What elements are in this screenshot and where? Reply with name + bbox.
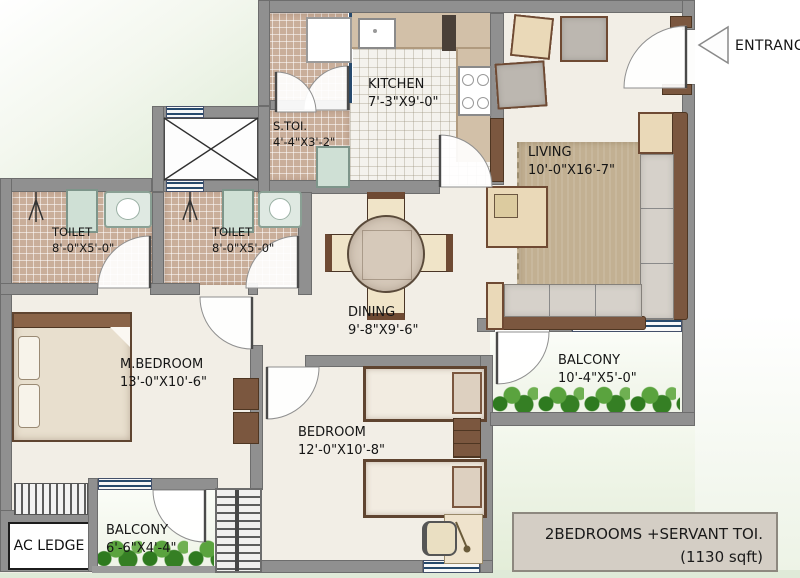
dining-name: DINING [348,304,418,322]
stoi-dims: 4'-4"X3'-2" [273,134,335,150]
exterior-right [695,0,800,572]
bedroom-label: BEDROOM 12'-0"X10'-8" [298,424,385,460]
sofa-seats-horizontal [504,284,642,317]
wall-left [0,178,12,512]
entrance-jamb-bottom [662,84,692,95]
mbedroom-dims: 13'-0"X10'-6" [120,374,207,392]
sofa-corner-table [638,112,676,154]
bed2-pillow [452,466,482,508]
entrance-label: ENTRANCE [735,37,800,57]
balcony-bedroom-window [98,478,152,490]
dining-table [347,215,425,293]
toilet1-basin [116,198,140,220]
kitchen-stove [458,66,492,116]
toilet1-name: TOILET [52,224,114,240]
bedroom-bed-1 [363,366,487,422]
toilet1-sink [104,191,152,228]
kitchen-name: KITCHEN [368,76,438,94]
shaft-window-top [166,106,204,118]
balcony-living-label: BALCONY 10'-4"X5'-0" [558,352,637,388]
floor-plan: AC LEDGE [0,0,800,578]
master-bed-fold [110,327,130,347]
master-bed [12,312,132,442]
living-armchair-2 [560,16,608,62]
master-bed-pillow-1 [18,336,40,380]
mbedroom-label: M.BEDROOM 13'-0"X10'-6" [120,356,207,392]
living-name: LIVING [528,144,615,162]
mbedroom-wardrobe-a [233,378,259,410]
kitchen-dims: 7'-3"X9'-0" [368,94,438,112]
mbedroom-wardrobe-hatch [14,483,88,515]
pillar-kitchen-living [490,118,504,182]
sofa-back-vertical [672,112,688,320]
kitchen-sink-drain [373,29,377,33]
kitchen-sink [358,18,396,49]
wall-bedroom-bottom [258,560,423,573]
bedroom-name: BEDROOM [298,424,385,442]
balcony-bedroom-parapet [92,566,218,573]
bedroom-bed-2 [363,459,487,518]
dining-dims: 9'-8"X9'-6" [348,322,418,340]
toilet1-dims: 8'-0"X5'-0" [52,240,114,256]
wall-toilets-bottom-b [150,283,200,295]
wall-servant-left [258,0,270,106]
mbedroom-wardrobe-b [233,412,259,444]
balcony-living-name: BALCONY [558,352,637,370]
wall-toilets-bottom-a [0,283,98,295]
living-armchair-3 [494,60,547,109]
bedroom-dims: 12'-0"X10'-8" [298,442,385,460]
living-coffee-table [486,186,548,248]
shaft-window-bottom [166,180,204,192]
sofa-seats-vertical [640,154,674,320]
dining-table-inlay [362,230,412,280]
master-bed-pillow-2 [18,384,40,428]
shaft-wall-left [152,106,164,192]
entrance-jamb-top [670,16,692,28]
wardrobe-ladder-strip [215,488,262,573]
toilet2-name: TOILET [212,224,274,240]
shaft-interior [164,118,258,180]
coffee-table-inlay [494,194,518,218]
bedroom-desk-chair [422,521,457,556]
toilet2-basin [269,198,291,220]
wall-balcony-living-bottom [490,412,695,426]
balcony-bedroom-label: BALCONY 6'-6"X4'-4" [106,522,176,558]
ac-ledge-box: AC LEDGE [8,522,90,570]
plan-title-line2: (1130 sqft) [514,546,763,569]
stove-burner [477,97,489,109]
balcony-bedroom-dims: 6'-6"X4'-4" [106,540,176,558]
dining-label: DINING 9'-8"X9'-6" [348,304,418,340]
toilet1-label: TOILET 8'-0"X5'-0" [52,224,114,256]
plan-title-line1: 2BEDROOMS +SERVANT TOI. [514,523,763,546]
stove-burner [462,97,474,109]
living-armchair-1 [510,14,554,60]
kitchen-fridge [442,15,456,51]
kitchen-label: KITCHEN 7'-3"X9'-0" [368,76,438,112]
balcony-living-dims: 10'-4"X5'-0" [558,370,637,388]
stoi-label: S.TOI. 4'-4"X3'-2" [273,118,335,150]
shaft-wall-right [258,106,270,192]
mbedroom-name: M.BEDROOM [120,356,207,374]
toilet2-dims: 8'-0"X5'-0" [212,240,274,256]
master-bed-rail [14,314,130,328]
toilet2-label: TOILET 8'-0"X5'-0" [212,224,274,256]
bedroom-nightstand [453,418,481,458]
wall-toilet-divider [152,192,164,290]
wall-door-pillar [248,283,258,295]
stove-burner [477,74,489,86]
living-label: LIVING 10'-0"X16'-7" [528,144,615,180]
wall-balcony-bedroom-left [88,478,98,572]
bed1-pillow [452,372,482,414]
living-dims: 10'-0"X16'-7" [528,162,615,180]
toilet2-sink [258,191,302,228]
stoi-name: S.TOI. [273,118,335,134]
wall-top [258,0,695,13]
plan-title-box: 2BEDROOMS +SERVANT TOI. (1130 sqft) [512,512,778,572]
sofa-armrest-left [486,282,504,330]
ac-ledge-label: AC LEDGE [14,538,85,554]
balcony-bedroom-name: BALCONY [106,522,176,540]
washing-unit [306,17,352,63]
stoi-shower-tray [316,146,350,188]
sofa-back-horizontal [500,316,646,330]
wall-servant-stoi-divider [270,100,350,110]
stove-burner [462,74,474,86]
